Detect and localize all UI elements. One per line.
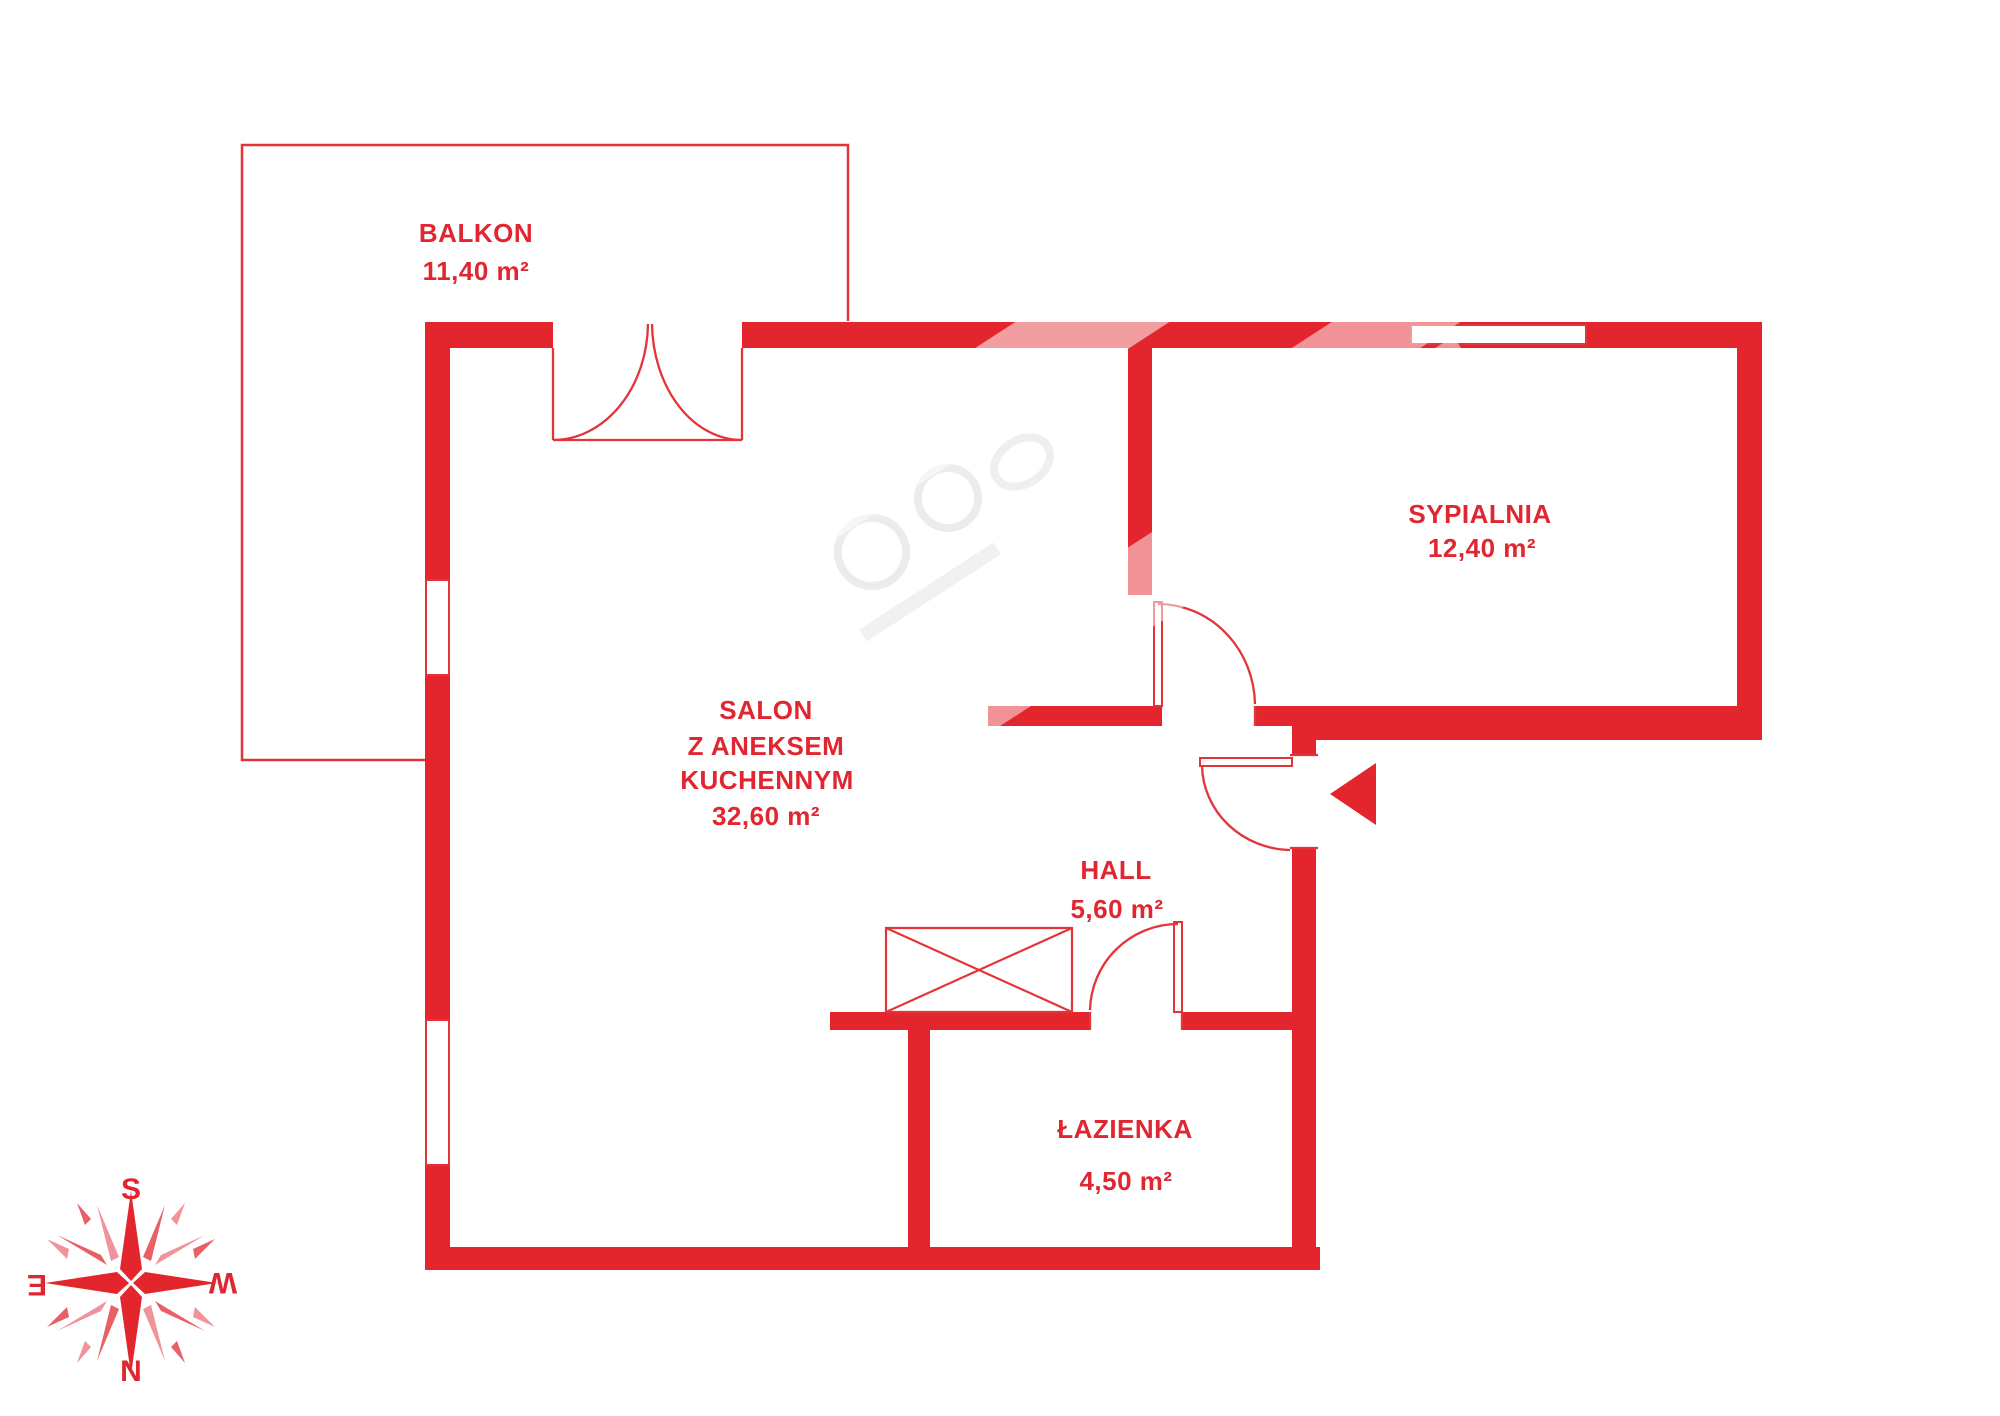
room-label-hall-name: HALL (1080, 857, 1151, 883)
wall-right-bedroom (1737, 322, 1762, 740)
watermark (747, 93, 1617, 773)
room-label-balkon-name: BALKON (419, 220, 533, 246)
room-label-lazienka-name: ŁAZIENKA (1057, 1116, 1192, 1142)
wall-bathroom-top-a (830, 1012, 1090, 1030)
compass-label-n: N (120, 1357, 142, 1387)
room-label-salon-area: 32,60 m² (712, 803, 820, 829)
room-label-sypialnia-name: SYPIALNIA (1408, 501, 1551, 527)
room-label-balkon-area: 11,40 m² (423, 258, 530, 284)
floor-plan-page: BALKON 11,40 m² SALON Z ANEKSEM KUCHENNY… (0, 0, 2000, 1416)
room-label-sypialnia-area: 12,40 m² (1428, 535, 1536, 561)
window-left-lower (426, 1020, 449, 1165)
bedroom-door-opening (1162, 704, 1255, 728)
bedroom-door-swing-arc (1158, 604, 1255, 704)
wall-bathroom-left (908, 1030, 930, 1247)
washing-machine-symbol (886, 928, 1072, 1012)
bathroom-door-leaf (1174, 922, 1182, 1012)
entrance-door-leaf (1200, 758, 1292, 766)
wall-bathroom-top-b (1182, 1012, 1294, 1030)
floor-plan-drawing (0, 0, 2000, 1416)
room-label-salon-line1: SALON (719, 697, 813, 723)
compass-label-s: S (121, 1175, 141, 1205)
wall-bedroom-bottom-thin (1255, 706, 1292, 726)
compass-label-w: W (209, 1267, 237, 1297)
bathroom-door-swing-arc (1090, 924, 1178, 1010)
room-label-lazienka-area: 4,50 m² (1079, 1168, 1172, 1194)
wall-bottom (425, 1247, 1320, 1270)
entrance-door-opening (1290, 755, 1318, 848)
bathroom-door-opening (1090, 1010, 1182, 1032)
compass-label-e: E (27, 1269, 47, 1299)
compass-rose-icon (45, 1191, 217, 1375)
room-label-hall-area: 5,60 m² (1070, 896, 1163, 922)
compass-main-points (45, 1191, 217, 1375)
room-label-salon-line2: Z ANEKSEM (688, 733, 845, 759)
entrance-door-swing-arc (1202, 766, 1290, 850)
room-label-salon-line3: KUCHENNYM (680, 767, 854, 793)
entrance-arrow-icon (1330, 763, 1376, 825)
wall-bedroom-bottom-thick (1292, 706, 1762, 740)
balcony-outline (242, 145, 848, 760)
window-left-upper (426, 580, 449, 675)
